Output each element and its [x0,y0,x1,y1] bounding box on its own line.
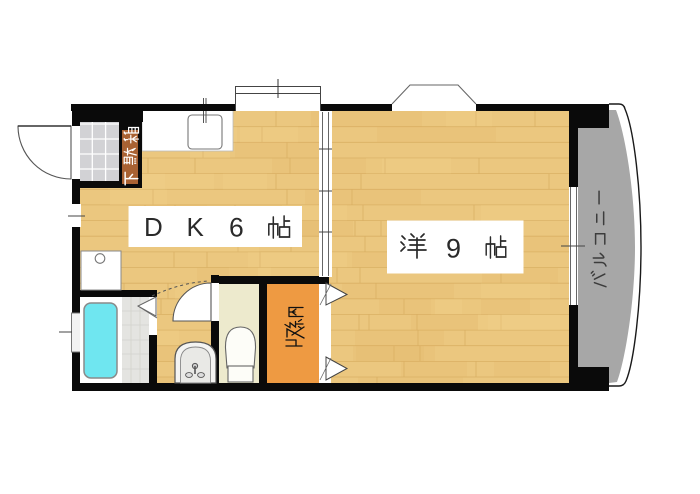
svg-text:D: D [144,212,163,242]
svg-text:6: 6 [229,213,244,243]
svg-text:9: 9 [446,234,461,264]
svg-text:K: K [187,212,205,242]
